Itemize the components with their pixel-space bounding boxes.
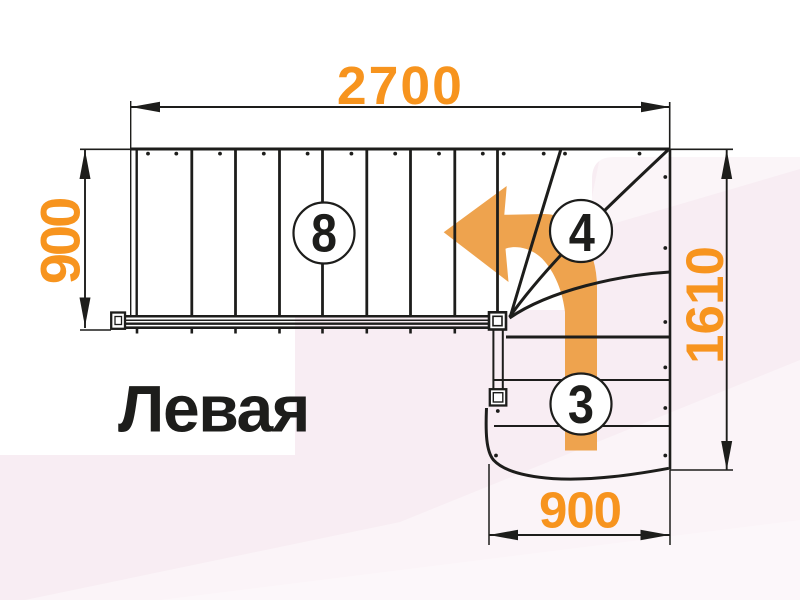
svg-text:3: 3	[568, 374, 594, 435]
svg-text:2700: 2700	[337, 57, 464, 116]
svg-text:1610: 1610	[676, 246, 735, 364]
svg-text:900: 900	[539, 482, 621, 539]
svg-text:Левая: Левая	[118, 372, 309, 446]
svg-text:8: 8	[311, 202, 337, 263]
svg-text:4: 4	[569, 202, 595, 263]
svg-text:900: 900	[29, 199, 92, 284]
